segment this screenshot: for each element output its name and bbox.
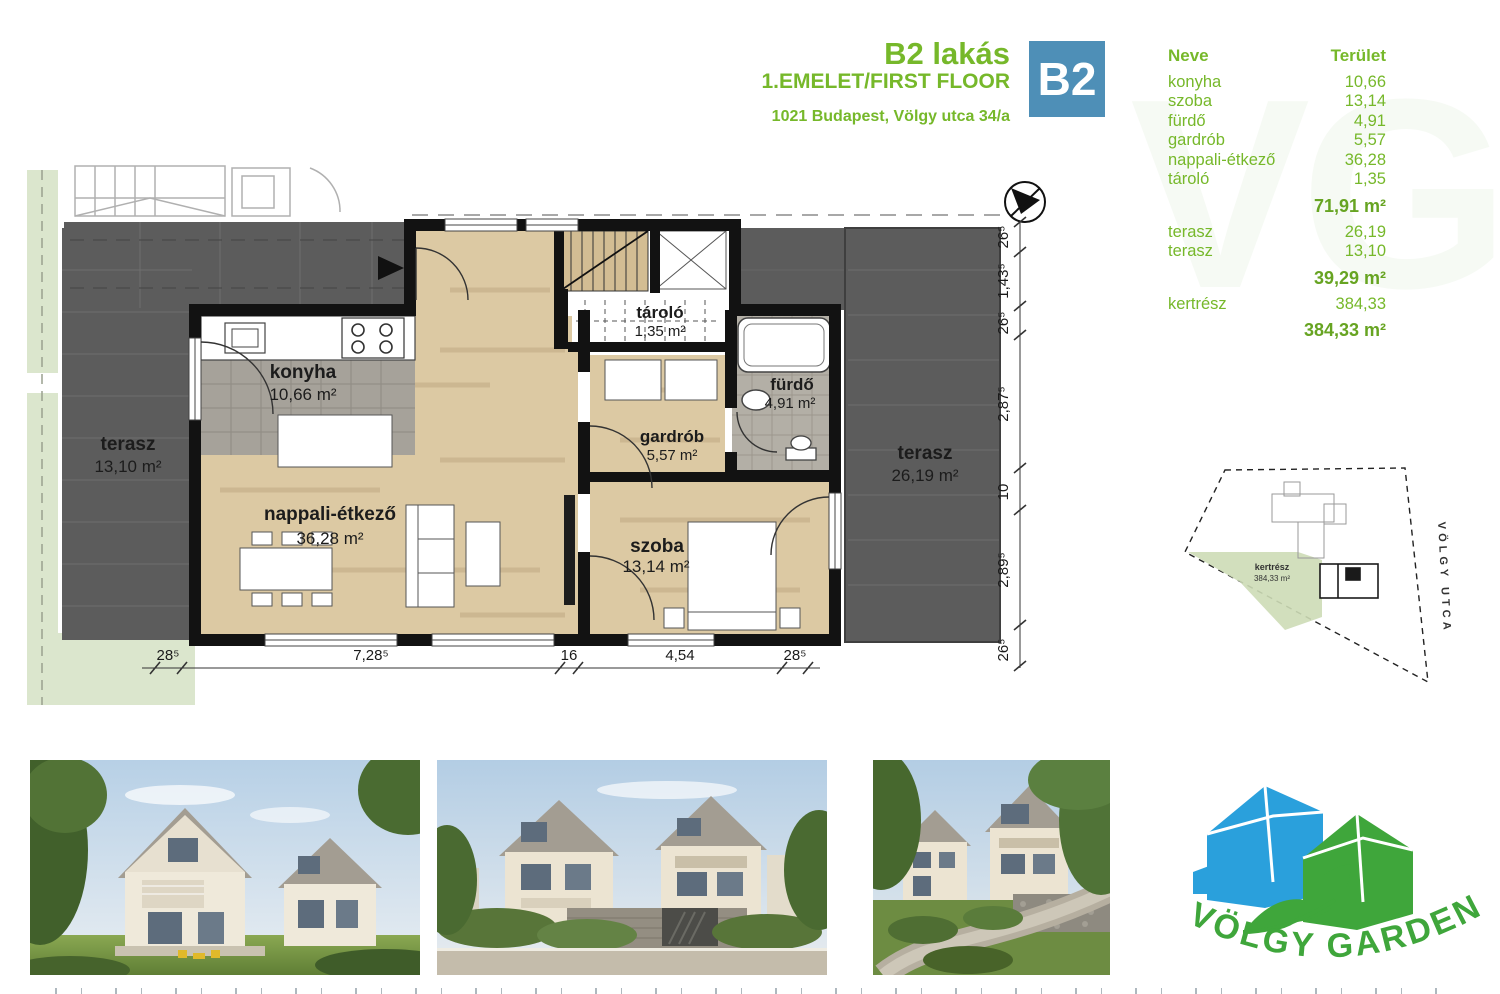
- room-area-terasz-left: 13,10 m²: [94, 457, 161, 476]
- table-row: konyha10,66: [1168, 73, 1386, 93]
- floor-plan-drawing: konyha 10,66 m² nappali-étkező 36,28 m² …: [20, 160, 1070, 710]
- table-row: gardrób5,57: [1168, 131, 1386, 151]
- room-area-terasz-right: 26,19 m²: [891, 466, 958, 485]
- room-label-terasz-left: terasz: [101, 434, 156, 455]
- room-label-szoba: szoba: [630, 536, 684, 557]
- brochure-page: VG B2 lakás 1.EMELET/FIRST FLOOR 1021 Bu…: [0, 0, 1500, 994]
- area-table-header: Neve Terület: [1168, 46, 1386, 66]
- room-label-gardrob: gardrób: [640, 427, 704, 446]
- svg-text:2,89⁵: 2,89⁵: [995, 552, 1012, 587]
- render-photo-3: [873, 760, 1110, 975]
- svg-text:1,43⁵: 1,43⁵: [995, 263, 1012, 298]
- room-label-konyha: konyha: [270, 362, 337, 383]
- terraces-total: 39,29 m²: [1168, 268, 1386, 288]
- street-label: VÖLGY UTCA: [1435, 521, 1454, 633]
- svg-text:26⁵: 26⁵: [995, 226, 1012, 249]
- page-title: B2 lakás: [640, 38, 1010, 70]
- closet-outline: [656, 231, 726, 289]
- floor-plan: konyha 10,66 m² nappali-étkező 36,28 m² …: [20, 160, 1070, 715]
- svg-text:28⁵: 28⁵: [157, 647, 180, 664]
- table-row: terasz26,19: [1168, 223, 1386, 243]
- svg-text:26⁵: 26⁵: [995, 312, 1012, 335]
- stairs: [560, 231, 648, 291]
- room-label-nappali: nappali-étkező: [264, 504, 396, 525]
- address: 1021 Budapest, Völgy utca 34/a: [640, 108, 1010, 126]
- north-arrow-icon: [1005, 182, 1045, 222]
- room-label-tarolo: tároló: [636, 303, 683, 322]
- volgy-garden-logo: VÖLGY GARDEN: [1185, 772, 1485, 990]
- garden-total: 384,33 m²: [1168, 320, 1386, 340]
- room-label-furdo: fürdő: [770, 375, 813, 394]
- render-photo-2: [437, 760, 827, 975]
- svg-text:10: 10: [995, 484, 1012, 501]
- svg-text:16: 16: [561, 647, 578, 664]
- room-area-konyha: 10,66 m²: [269, 385, 336, 404]
- unit-badge: B2: [1029, 41, 1105, 117]
- svg-text:26⁵: 26⁵: [995, 639, 1012, 662]
- table-row: fürdő4,91: [1168, 112, 1386, 132]
- area-table: Neve Terület konyha10,66 szoba13,14 fürd…: [1168, 46, 1386, 347]
- garden-corner: [27, 633, 195, 705]
- room-area-tarolo: 1,35 m²: [635, 323, 686, 340]
- site-garden-area: 384,33 m²: [1254, 574, 1290, 583]
- table-row: kertrész384,33: [1168, 295, 1386, 315]
- svg-text:28⁵: 28⁵: [784, 647, 807, 664]
- room-area-furdo: 4,91 m²: [765, 395, 816, 412]
- room-area-nappali: 36,28 m²: [296, 529, 363, 548]
- unit-outline: [1320, 564, 1378, 598]
- cropped-disclaimer-text: [55, 988, 1445, 994]
- svg-text:2,87⁵: 2,87⁵: [995, 386, 1012, 421]
- table-row: tároló1,35: [1168, 170, 1386, 190]
- media-cabinet: [564, 495, 575, 605]
- neighbour-stair-outline: [75, 166, 340, 216]
- svg-text:4,54: 4,54: [665, 647, 694, 664]
- rooms-total: 71,91 m²: [1168, 196, 1386, 216]
- kitchen-island: [278, 415, 392, 467]
- room-area-gardrob: 5,57 m²: [647, 447, 698, 464]
- wardrobe: [605, 360, 717, 400]
- col-area: Terület: [1331, 46, 1386, 66]
- room-label-terasz-right: terasz: [898, 443, 953, 464]
- bathroom: [732, 315, 832, 473]
- table-row: nappali-étkező36,28: [1168, 151, 1386, 171]
- room-area-szoba: 13,14 m²: [622, 557, 689, 576]
- col-name: Neve: [1168, 46, 1209, 66]
- site-garden-label: kertrész: [1255, 562, 1290, 572]
- header: B2 lakás 1.EMELET/FIRST FLOOR 1021 Budap…: [640, 38, 1010, 126]
- bathtub-icon: [738, 318, 830, 372]
- floor-subtitle: 1.EMELET/FIRST FLOOR: [640, 70, 1010, 94]
- svg-text:7,28⁵: 7,28⁵: [353, 647, 388, 664]
- site-plan: kertrész 384,33 m² VÖLGY UTCA: [1180, 452, 1480, 707]
- table-row: terasz13,10: [1168, 242, 1386, 262]
- render-photo-1: [30, 760, 420, 975]
- table-row: szoba13,14: [1168, 92, 1386, 112]
- dimensions-bottom: 28⁵ 7,28⁵ 16 4,54 28⁵: [142, 647, 820, 674]
